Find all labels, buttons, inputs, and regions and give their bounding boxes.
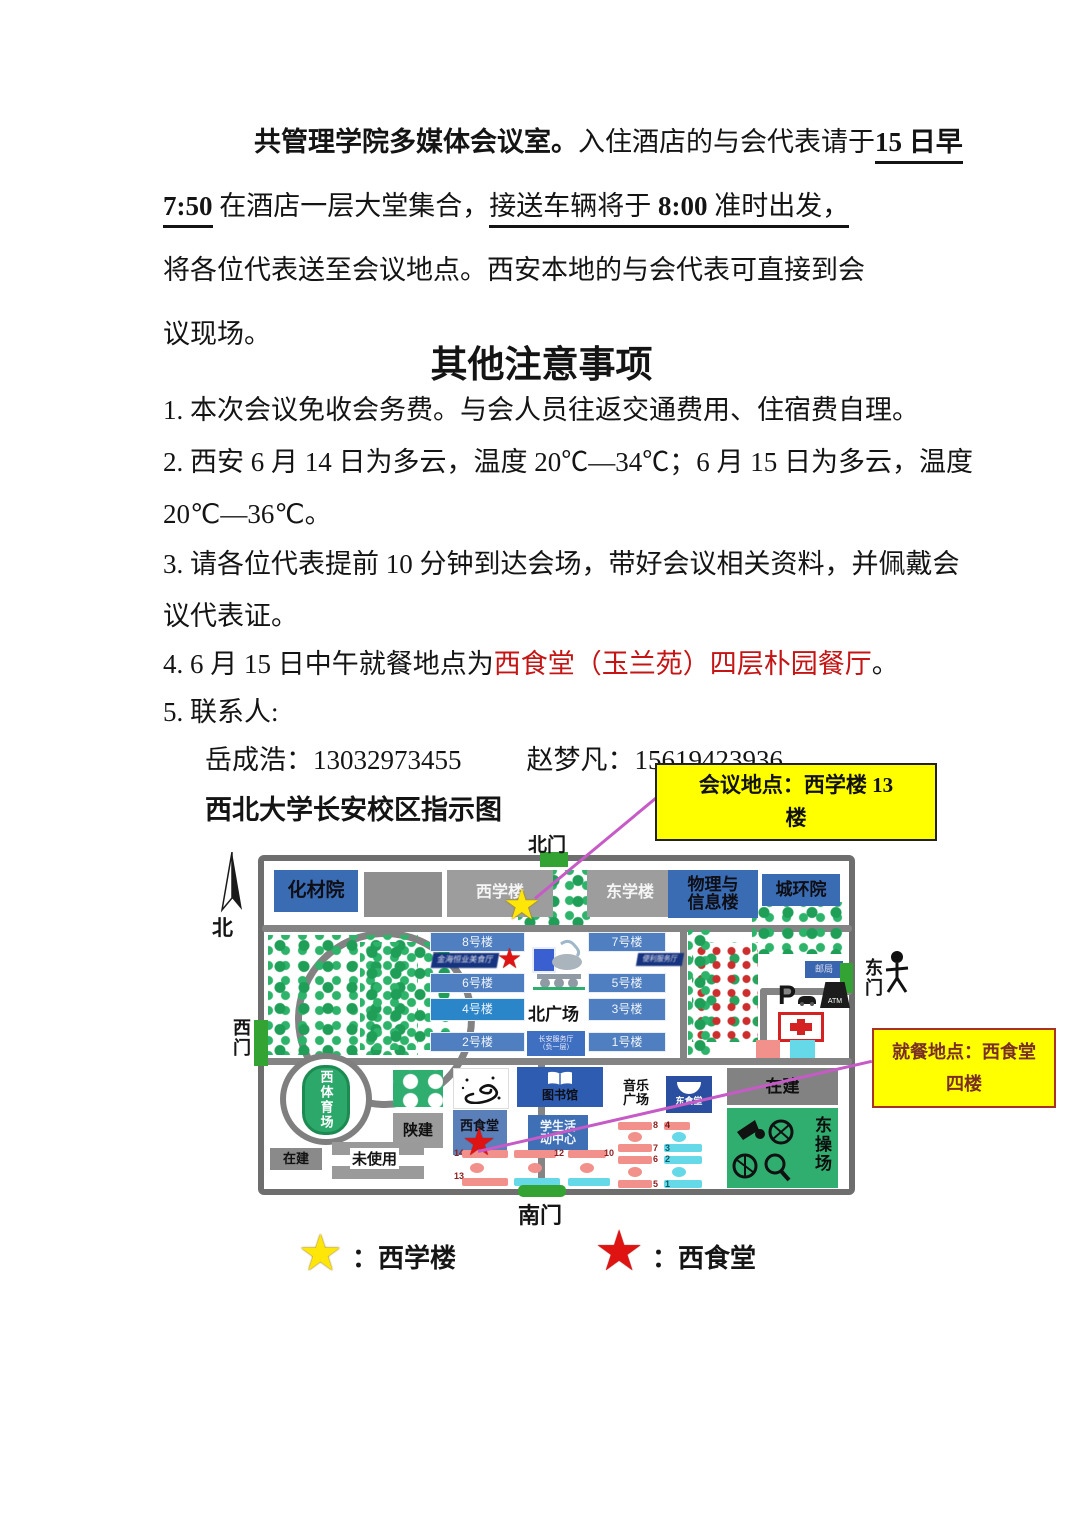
parking-label: P <box>778 980 796 1011</box>
east-playground-label: 东操场 <box>809 1116 834 1173</box>
dorm-number: 4 <box>665 1121 670 1130</box>
pond-icon <box>453 1068 509 1109</box>
shop-box-cyan <box>790 1040 815 1058</box>
car-icon <box>796 993 818 1011</box>
west-gate-label: 西门 <box>228 1018 254 1058</box>
library-label: 图书馆 <box>542 1086 578 1103</box>
dorm-number: 7 <box>653 1144 658 1153</box>
list-item-4: 4. 6 月 15 日中午就餐地点为西食堂（玉兰苑）四层朴园餐厅。 <box>163 642 899 681</box>
book-icon <box>547 1071 573 1086</box>
section-heading: 其他注意事项 <box>163 334 920 388</box>
dorm-number: 5 <box>653 1180 658 1189</box>
shop-box-pink <box>756 1040 780 1058</box>
paragraph-text: 15 日早 <box>875 127 963 164</box>
dorm-block: 2 1 <box>664 1156 704 1188</box>
west-stadium-label: 西体育场 <box>317 1070 336 1130</box>
paragraph-line: 将各位代表送至会议地点。西安本地的与会代表可直接到会 <box>163 248 865 287</box>
paragraph-text: 7:50 <box>163 191 213 228</box>
south-gate-label: 南门 <box>518 1198 562 1230</box>
map-red-star-small-icon: ★ <box>497 945 522 973</box>
paragraph-line: 共管理学院多媒体会议室。入住酒店的与会代表请于15 日早 <box>254 120 963 159</box>
map-title: 西北大学长安校区指示图 <box>205 788 502 827</box>
dorm-number: 12 <box>554 1149 564 1158</box>
dorm-block: 8 7 <box>618 1122 658 1152</box>
music-plaza-line1: 音乐 <box>623 1079 649 1093</box>
dorm-number: 2 <box>665 1155 670 1164</box>
west-gate-icon <box>254 1020 268 1066</box>
building-no2: 2号楼 <box>430 1032 525 1052</box>
south-gate-icon <box>518 1185 566 1197</box>
under-construction-bl: 在建 <box>270 1148 322 1170</box>
service-hall-box: 长安服务厅 （负一层） <box>527 1031 585 1056</box>
legend-yellow-star-icon: ★ <box>298 1228 343 1278</box>
paragraph-text: 共管理学院多媒体会议室。 <box>254 127 578 157</box>
bowl-icon <box>677 1082 701 1094</box>
compass-north-label: 北 <box>212 912 233 942</box>
contact-yue: 岳成浩：13032973455 <box>205 745 462 775</box>
building-library: 图书馆 <box>517 1067 603 1107</box>
road <box>680 928 687 1064</box>
north-gate-label: 北门 <box>528 830 566 857</box>
callout-meeting-line1: 会议地点：西学楼 13 <box>699 769 893 802</box>
building-no6: 6号楼 <box>430 973 525 993</box>
paragraph-text: 准时出发， <box>708 191 850 228</box>
dorm-block: 6 5 <box>618 1156 658 1188</box>
service-hall-line2: （负一层） <box>539 1044 574 1051</box>
callout-dining-line1: 就餐地点：西食堂 <box>892 1036 1036 1068</box>
paragraph-text: 接送车辆将于 <box>489 191 658 228</box>
tree-cluster <box>688 930 712 1055</box>
legend-yellow-label: ：西学楼 <box>352 1238 456 1275</box>
dorm-number: 10 <box>604 1149 614 1158</box>
dorm-block: 12 <box>514 1150 564 1188</box>
building-unlabeled <box>364 872 442 917</box>
dorm-block: 4 3 <box>664 1122 704 1152</box>
building-no4: 4号楼 <box>430 998 525 1021</box>
red-cross-clinic-icon <box>778 1012 824 1042</box>
east-playground: 东操场 <box>727 1108 838 1188</box>
dorm-number: 6 <box>653 1155 658 1164</box>
dorm-number: 8 <box>653 1121 658 1130</box>
legend-red-label: ：西食堂 <box>652 1238 756 1275</box>
tree-cluster <box>752 902 847 954</box>
callout-dining-line2: 四楼 <box>946 1068 982 1100</box>
notice-document-page: 共管理学院多媒体会议室。入住酒店的与会代表请于15 日早 7:50 在酒店一层大… <box>0 0 1080 1527</box>
building-no3: 3号楼 <box>588 998 666 1021</box>
music-plaza-line2: 广场 <box>623 1093 649 1107</box>
map-yellow-star-icon: ★ <box>503 884 541 926</box>
fountain-icon <box>531 938 585 995</box>
legend-red-star-icon: ★ <box>594 1224 644 1280</box>
callout-meeting-location: 会议地点：西学楼 13 楼 <box>655 763 937 841</box>
north-plaza-label: 北广场 <box>528 1000 579 1025</box>
north-compass-icon <box>218 852 246 919</box>
dorm-number: 3 <box>665 1144 670 1153</box>
building-no7: 7号楼 <box>588 932 666 952</box>
map-red-star-canteen-icon: ★ <box>462 1123 496 1161</box>
building-urban-env: 城环院 <box>762 874 840 906</box>
post-office-box: 邮局 <box>805 961 843 978</box>
pedestrian-stick-figure-icon <box>882 950 912 999</box>
building-no1: 1号楼 <box>588 1032 666 1052</box>
banner-canteen-left: 金海恒业美食厅 <box>431 953 500 968</box>
list-item-4-suffix: 。 <box>872 649 899 679</box>
west-stadium-track: 西体育场 <box>302 1065 350 1135</box>
banner-canteen-right: 便利服务厅 <box>636 953 684 966</box>
building-physics-info: 物理与 信息楼 <box>668 870 758 918</box>
list-item-5: 5. 联系人: <box>163 690 279 729</box>
paragraph-text: 在酒店一层大堂集合， <box>213 191 490 221</box>
building-physics-line1: 物理与 <box>688 876 739 894</box>
list-item-1: 1. 本次会议免收会务费。与会人员往返交通费用、住宿费自理。 <box>163 388 919 427</box>
service-hall-line1: 长安服务厅 <box>539 1036 574 1043</box>
list-item-2-line2: 20℃—36℃。 <box>163 492 332 531</box>
list-item-3-line1: 3. 请各位代表提前 10 分钟到达会场，带好会议相关资料，并佩戴会 <box>163 542 960 581</box>
sports-equipment-icons <box>729 1110 799 1186</box>
callout-meeting-line2: 楼 <box>786 802 807 835</box>
dining-location-highlight: 西食堂（玉兰苑）四层朴园餐厅 <box>494 649 872 679</box>
campus-map: 北 化材院 西学楼 东学楼 物理与 信息楼 城环院 北门 ★ <box>200 830 940 1270</box>
list-item-3-line2: 议代表证。 <box>163 594 298 633</box>
building-chemical-materials: 化材院 <box>274 870 358 912</box>
paragraph-line: 7:50 在酒店一层大堂集合，接送车辆将于 8:00 准时出发， <box>163 184 849 223</box>
dorm-block: 10 <box>568 1150 614 1188</box>
dorm-number: 1 <box>665 1180 670 1189</box>
unused-label: 未使用 <box>350 1148 399 1169</box>
callout-dining-location: 就餐地点：西食堂 四楼 <box>872 1028 1056 1108</box>
building-physics-line2: 信息楼 <box>688 894 739 912</box>
list-item-4-prefix: 4. 6 月 15 日中午就餐地点为 <box>163 649 494 679</box>
sports-courts-icon <box>393 1070 443 1107</box>
music-plaza-label: 音乐 广场 <box>614 1075 658 1111</box>
paragraph-text: 8:00 <box>658 191 708 228</box>
building-east-school: 东学楼 <box>587 870 673 917</box>
paragraph-text: 入住酒店的与会代表请于 <box>578 127 875 157</box>
building-no5: 5号楼 <box>588 973 666 993</box>
list-item-2-line1: 2. 西安 6 月 14 日为多云，温度 20℃—34℃；6 月 15 日为多云… <box>163 440 973 479</box>
